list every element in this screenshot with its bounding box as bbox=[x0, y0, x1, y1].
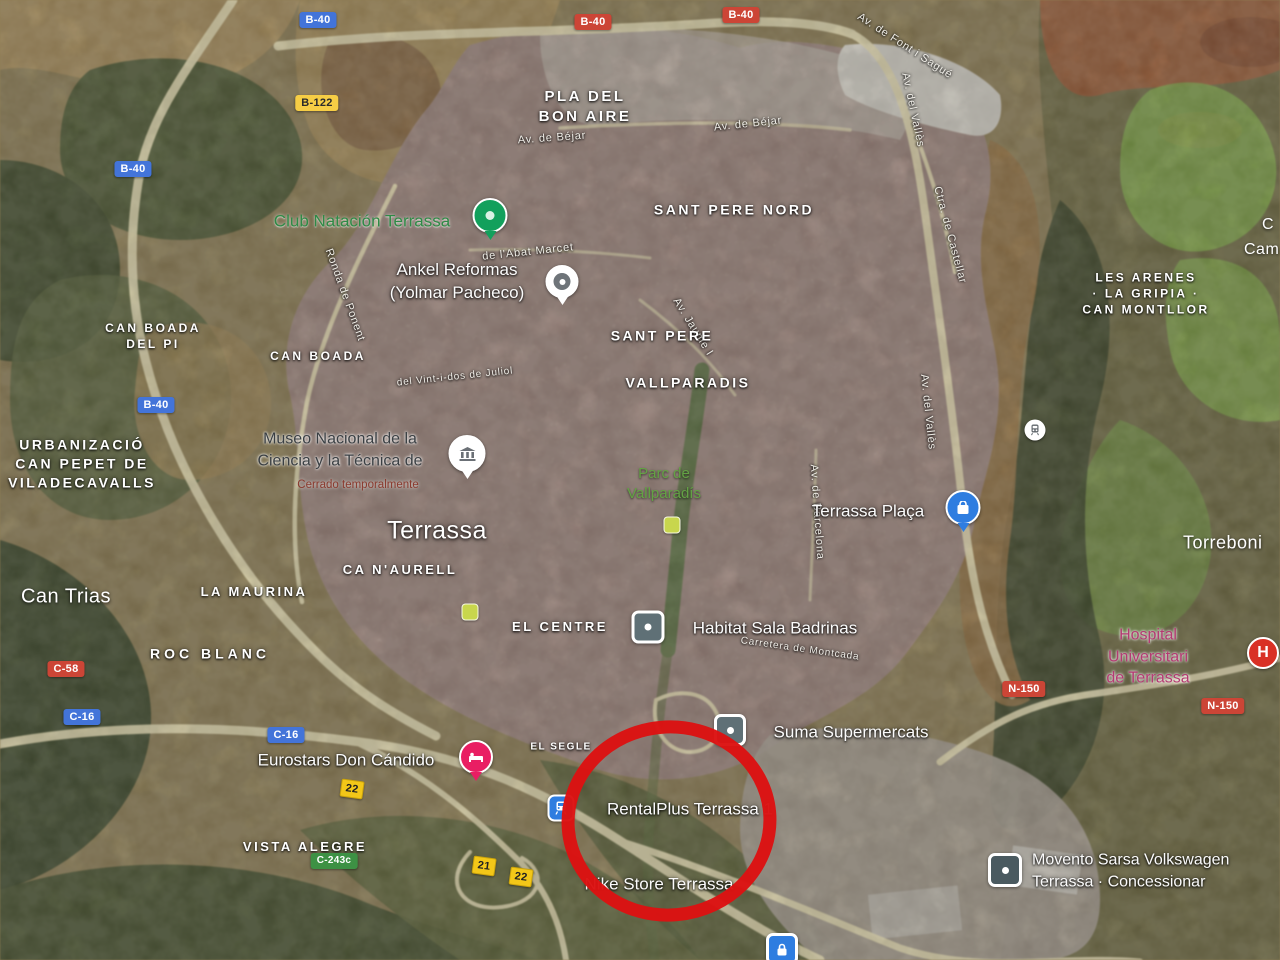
road-badge-b40-nw: B-40 bbox=[299, 12, 336, 28]
poi-pin-eurostars-hotel[interactable] bbox=[459, 740, 493, 774]
poi-pin-club-natacio[interactable] bbox=[473, 198, 508, 233]
railway-station-marker[interactable] bbox=[1025, 402, 1046, 459]
district-label-vallparadis: VALLPARADIS bbox=[626, 374, 751, 393]
train-glyph bbox=[556, 802, 567, 815]
district-label-ca-n-aurell: CA N'AURELL bbox=[343, 561, 458, 579]
hospital-h-icon: H bbox=[1247, 637, 1279, 669]
poi-label-habitat-sala-badrinas[interactable]: Habitat Sala Badrinas bbox=[693, 618, 857, 641]
poi-icon-habitat-sala-badrinas[interactable] bbox=[632, 611, 665, 644]
edge-partial-label-top: C bbox=[1262, 216, 1274, 234]
road-badge-b40-w2: B-40 bbox=[137, 397, 174, 413]
museum-building-icon bbox=[449, 435, 486, 472]
district-label-can-boada-del-pi: CAN BOADA DEL PI bbox=[105, 320, 201, 352]
poi-label-movento-sarsa-volkswagen[interactable]: Movento Sarsa Volkswagen Terrassa · Conc… bbox=[1032, 849, 1229, 892]
road-badge-c16-a: C-16 bbox=[63, 709, 100, 725]
poi-label-ankel-reformas[interactable]: Ankel Reformas (Yolmar Pacheco) bbox=[390, 259, 525, 305]
poi-label-rentalplus-terrassa[interactable]: RentalPlus Terrassa 1 bbox=[607, 799, 773, 822]
park-poi-icon-vallparadis[interactable] bbox=[664, 517, 681, 534]
poi-pin-museum[interactable] bbox=[449, 435, 486, 472]
district-label-les-arenes-la-gripia-can-montllor: LES ARENES · LA GRIPIA · CAN MONTLLOR bbox=[1082, 270, 1209, 319]
train-station-icon-blue[interactable] bbox=[548, 795, 575, 822]
district-label-can-boada: CAN BOADA bbox=[270, 348, 366, 364]
road-badge-b122: B-122 bbox=[295, 95, 338, 111]
road-badge-c58: C-58 bbox=[47, 661, 84, 677]
poi-icon-movento-volkswagen[interactable] bbox=[988, 853, 1022, 887]
poi-label-terrassa-placa[interactable]: Terrassa Plaça bbox=[812, 501, 924, 524]
poi-status-museu-closed: Cerrado temporalmente bbox=[297, 479, 418, 491]
poi-pin-terrassa-placa[interactable] bbox=[946, 490, 981, 525]
district-label-el-segle: EL SEGLE bbox=[530, 740, 591, 754]
exit-badge-21: 21 bbox=[471, 855, 496, 876]
city-label-terrassa: Terrassa bbox=[387, 517, 487, 546]
road-badge-c16-b: C-16 bbox=[267, 727, 304, 743]
poi-label-parc-vallparadis[interactable]: Parc de Vallparadís bbox=[627, 464, 701, 505]
town-label-torrebonica: Torreboni bbox=[1183, 533, 1263, 554]
edge-partial-label-bottom: Cam bbox=[1244, 241, 1279, 259]
transit-lock-icon-blue[interactable] bbox=[766, 933, 798, 960]
bag-glyph bbox=[957, 501, 970, 515]
railway-station-icon bbox=[1025, 420, 1046, 441]
swimming-club-pin-icon bbox=[473, 198, 508, 233]
exit-badge-22-a: 22 bbox=[339, 778, 364, 799]
district-label-urbanitzacio-can-pepet: URBANIZACIÓ CAN PEPET DE VILADECAVALLS bbox=[8, 436, 156, 493]
road-badge-b40-w1: B-40 bbox=[114, 161, 151, 177]
hospital-marker[interactable]: H bbox=[1247, 619, 1279, 687]
museum-columns-glyph bbox=[459, 447, 475, 461]
train-small-glyph bbox=[1031, 425, 1040, 436]
road-badge-b40-top-a: B-40 bbox=[574, 14, 611, 30]
generic-place-pin-icon bbox=[546, 265, 579, 298]
poi-pin-ankel-reformas[interactable] bbox=[546, 265, 579, 298]
poi-icon-suma-supermercats[interactable] bbox=[714, 714, 746, 746]
district-label-sant-pere-nord: SANT PERE NORD bbox=[654, 201, 814, 220]
district-label-la-maurina: LA MAURINA bbox=[201, 583, 308, 601]
satellite-map-viewport[interactable]: Av. de Font i Sagué Av. del Vallès Ctra.… bbox=[0, 0, 1280, 960]
road-badge-n150-b: N-150 bbox=[1201, 698, 1244, 714]
district-label-el-centre: EL CENTRE bbox=[512, 618, 608, 636]
shopping-bag-icon bbox=[946, 490, 981, 525]
district-label-pla-del-bon-aire: PLA DEL BON AIRE bbox=[539, 87, 632, 128]
road-badge-n150-a: N-150 bbox=[1002, 681, 1045, 697]
padlock-glyph bbox=[776, 943, 788, 956]
poi-label-nike-store-terrassa[interactable]: Nike Store Terrassa bbox=[585, 874, 734, 897]
hotel-bed-icon bbox=[459, 740, 493, 774]
park-poi-icon-el-centre[interactable] bbox=[462, 604, 479, 621]
district-label-sant-pere: SANT PERE bbox=[611, 327, 714, 346]
road-badge-b40-top-b: B-40 bbox=[722, 7, 759, 23]
poi-label-eurostars-don-candido[interactable]: Eurostars Don Cándido bbox=[258, 750, 435, 773]
poi-label-museu-ciencia-tecnica[interactable]: Museo Nacional de la Ciencia y la Técnic… bbox=[257, 428, 422, 471]
poi-label-club-natacio-terrassa[interactable]: Club Natación Terrassa bbox=[274, 211, 450, 234]
district-label-roc-blanc: ROC BLANC bbox=[150, 645, 270, 664]
exit-badge-22-b: 22 bbox=[508, 866, 533, 887]
poi-label-hospital-universitari[interactable]: Hospital Universitari de Terrassa bbox=[1082, 625, 1214, 690]
road-badge-c243c: C-243c bbox=[311, 853, 358, 869]
town-label-can-trias: Can Trias bbox=[21, 586, 111, 609]
poi-label-suma-supermercats[interactable]: Suma Supermercats bbox=[774, 722, 929, 745]
bed-glyph bbox=[469, 752, 483, 762]
